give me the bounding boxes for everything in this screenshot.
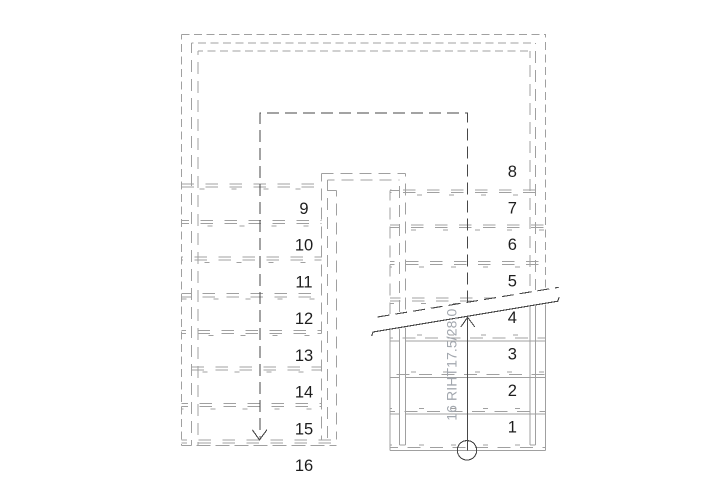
svg-text:13: 13 <box>295 347 313 365</box>
svg-text:12: 12 <box>295 310 313 328</box>
svg-text:11: 11 <box>295 274 312 292</box>
svg-text:7: 7 <box>508 200 517 218</box>
svg-text:16: 16 <box>295 457 313 475</box>
svg-text:8: 8 <box>508 163 517 181</box>
svg-text:3: 3 <box>508 345 517 363</box>
svg-text:15: 15 <box>295 420 313 438</box>
svg-text:16 RIHT17.5/28.0: 16 RIHT17.5/28.0 <box>444 308 460 420</box>
svg-text:1: 1 <box>508 418 517 436</box>
svg-text:9: 9 <box>299 200 308 218</box>
svg-text:5: 5 <box>508 273 517 291</box>
svg-text:6: 6 <box>508 236 517 254</box>
svg-text:10: 10 <box>295 237 313 255</box>
svg-text:2: 2 <box>508 382 517 400</box>
svg-text:14: 14 <box>295 384 313 402</box>
svg-text:4: 4 <box>508 309 517 327</box>
